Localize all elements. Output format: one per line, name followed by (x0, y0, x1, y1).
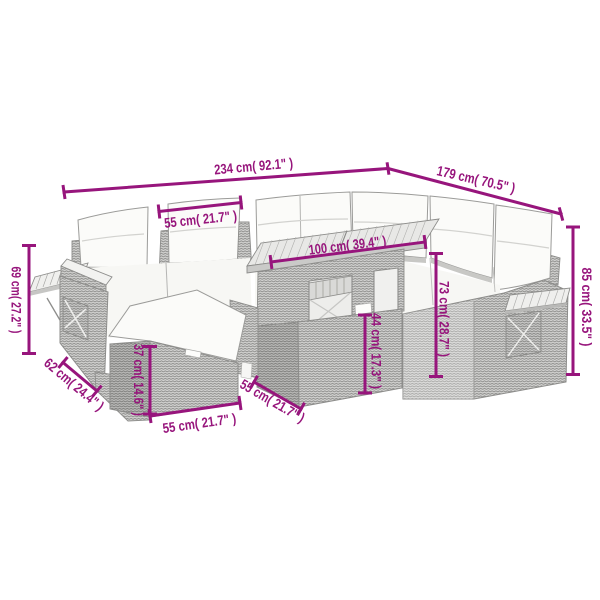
svg-text:85 cm( 33.5" ): 85 cm( 33.5" ) (579, 268, 595, 347)
svg-text:69 cm( 27.2" ): 69 cm( 27.2" ) (9, 267, 25, 334)
svg-text:44 cm( 17.3" ): 44 cm( 17.3" ) (369, 313, 385, 389)
svg-text:73 cm( 28.7" ): 73 cm( 28.7" ) (437, 281, 453, 357)
svg-text:37 cm( 14.6" ): 37 cm( 14.6" ) (131, 344, 147, 416)
